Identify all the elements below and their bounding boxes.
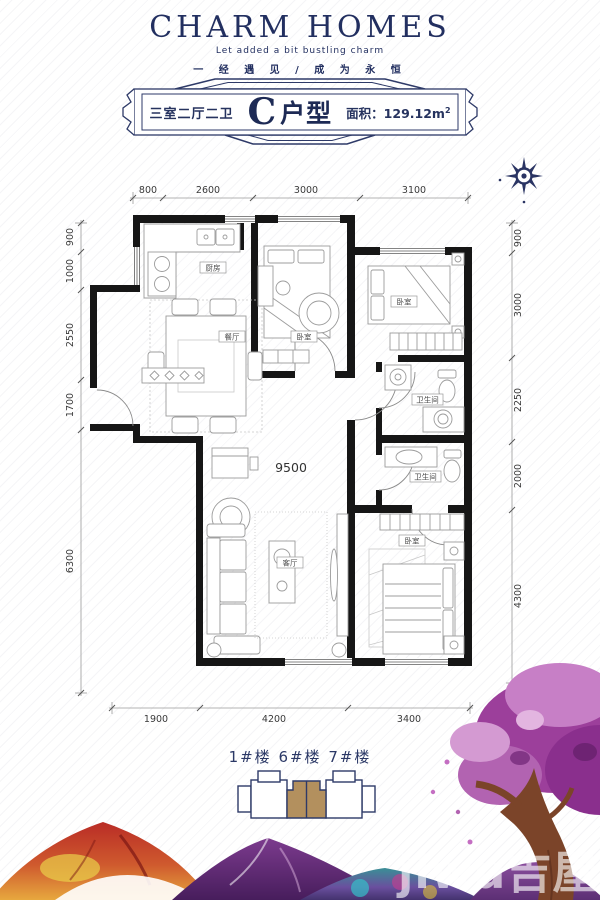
unit-suffix: 户型	[280, 94, 332, 130]
label-bath-b: 卫生间	[414, 472, 437, 482]
label-bedroom-a: 卧室	[297, 332, 312, 342]
building-diagram	[238, 771, 375, 818]
furniture-dining	[142, 299, 262, 433]
dim-left-1: 1000	[65, 259, 76, 283]
label-bath-a: 卫生间	[416, 395, 439, 405]
dim-top-2: 3000	[294, 185, 318, 196]
floor-plan: 厨房 餐厅 卧室 卧室 卫生间 卫生间 客厅 卧室 9500	[65, 185, 524, 725]
area-value: 面积：129.12m	[346, 106, 445, 121]
dim-left-0: 900	[65, 228, 76, 246]
label-bedroom-c: 卧室	[405, 536, 420, 546]
banner-unit-name: C 户型	[248, 94, 333, 130]
building-numbers: 1#楼 6#楼 7#楼	[0, 746, 600, 767]
dim-top-0: 800	[139, 185, 157, 196]
furniture-kitchen	[144, 224, 240, 298]
label-dining: 餐厅	[225, 333, 240, 342]
dim-top-3: 3100	[402, 185, 426, 196]
banner-text: 三室二厅二卫 C 户型 面积：129.12m2	[142, 89, 458, 135]
furniture-living	[207, 448, 348, 657]
banner-area: 面积：129.12m2	[346, 103, 450, 122]
unit-banner: 三室二厅二卫 C 户型 面积：129.12m2	[120, 76, 480, 148]
dim-left-3: 1700	[65, 393, 76, 417]
dim-bottom-1: 4200	[262, 714, 286, 725]
label-bedroom-b: 卧室	[397, 297, 412, 307]
brand-title: CHARM HOMES	[0, 12, 600, 44]
area-superscript: 2	[445, 105, 451, 114]
dim-bottom-0: 1900	[144, 714, 168, 725]
unit-letter: C	[248, 94, 277, 130]
label-kitchen: 厨房	[206, 263, 221, 273]
banner-room-config: 三室二厅二卫	[149, 103, 233, 122]
dim-left-4: 6300	[65, 549, 76, 573]
furniture-bedroom-a	[258, 246, 339, 363]
compass-icon	[499, 157, 543, 203]
dim-right-1: 3000	[513, 293, 524, 317]
dimension-top: 800 2600 3000 3100	[130, 185, 471, 204]
brand-tagline: 一 经 遇 见 / 成 为 永 恒	[0, 61, 600, 76]
dim-right-4: 4300	[513, 584, 524, 608]
brand-subtitle: Let added a bit bustling charm	[0, 46, 600, 56]
dim-top-1: 2600	[196, 185, 220, 196]
dimension-right: 900 3000 2250 2000 4300	[506, 220, 524, 686]
dimension-bottom: 1900 4200 3400	[109, 702, 473, 725]
dim-right-2: 2250	[513, 388, 524, 412]
dim-left-2: 2550	[65, 323, 76, 347]
dimension-left: 900 1000 2550 1700 6300	[65, 220, 87, 696]
label-living: 客厅	[283, 558, 298, 568]
dim-right-3: 2000	[513, 464, 524, 488]
header: CHARM HOMES Let added a bit bustling cha…	[0, 12, 600, 76]
watermark: jiwu吉屋	[398, 836, 600, 900]
label-span: 9500	[275, 460, 307, 475]
dim-right-0: 900	[513, 229, 524, 247]
floorplan-poster: 厨房 餐厅 卧室 卧室 卫生间 卫生间 客厅 卧室 9500	[0, 0, 600, 900]
dim-bottom-2: 3400	[397, 714, 421, 725]
